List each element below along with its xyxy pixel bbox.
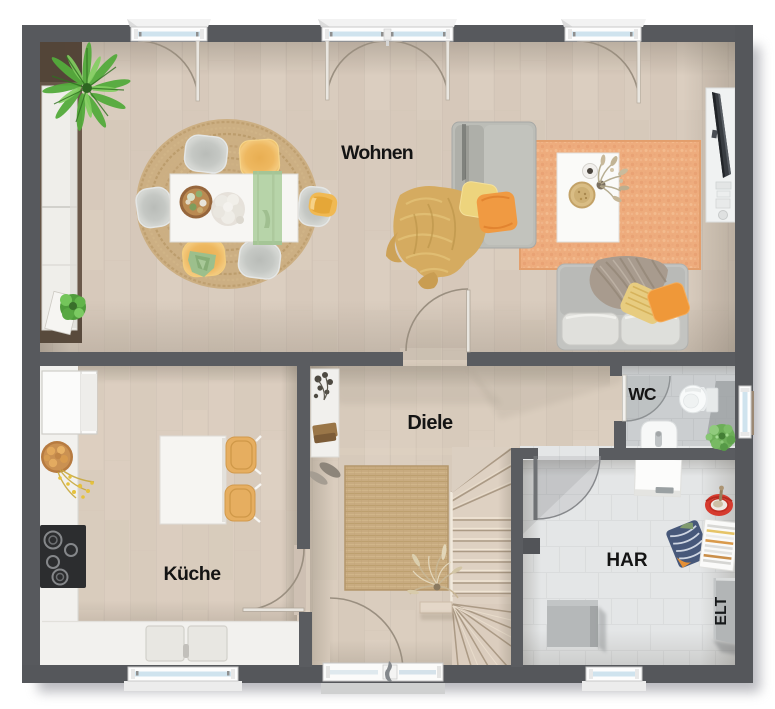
svg-text:Diele: Diele	[407, 412, 453, 434]
svg-text:ELT: ELT	[713, 596, 730, 625]
svg-text:Küche: Küche	[163, 563, 221, 585]
svg-text:Wohnen: Wohnen	[341, 142, 413, 164]
svg-text:WC: WC	[628, 384, 657, 404]
svg-text:HAR: HAR	[606, 550, 647, 571]
